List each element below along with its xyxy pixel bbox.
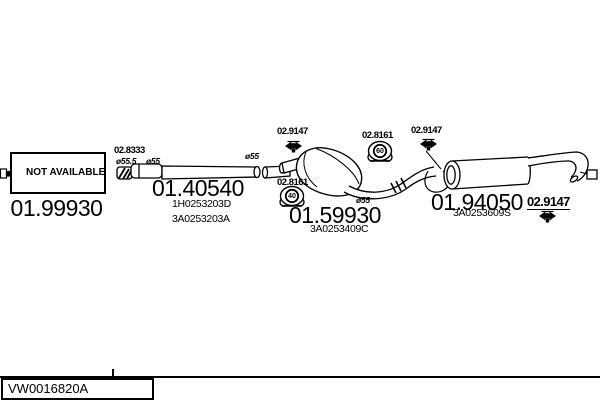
- hanger-size: 40: [285, 193, 299, 200]
- diameter-label: ø55: [146, 157, 160, 166]
- footer-tick: [112, 369, 114, 377]
- part-number-front-section: 01.99930: [8, 197, 105, 220]
- oem-ref: 3A0253203A: [172, 214, 230, 225]
- diameter-label: ø55: [245, 152, 259, 161]
- clamp-icon: [539, 212, 556, 223]
- part-number-clamp: 02.9147: [527, 195, 570, 210]
- oem-ref: 1H0253203D: [172, 199, 231, 210]
- not-available-box: NOT AVAILABLE: [10, 152, 106, 194]
- drawing-code-box: VW0016820A: [1, 378, 154, 400]
- rear-muffler-drawing: [426, 151, 597, 189]
- left-edge-connector-icon: [1, 169, 10, 178]
- oem-ref: 3A0253409C: [310, 224, 368, 235]
- part-number-coupler: 02.8333: [114, 146, 145, 156]
- not-available-label: NOT AVAILABLE: [26, 167, 90, 179]
- hanger-size: 60: [373, 148, 387, 155]
- diameter-label: ø55.5: [116, 157, 136, 166]
- exhaust-parts-diagram: { "diagram": { "front_section": { "statu…: [0, 0, 600, 400]
- part-number-hanger-front: 02.8161: [277, 178, 308, 188]
- part-number-clamp: 02.9147: [411, 126, 442, 136]
- mid-muffler-drawing: [280, 148, 450, 199]
- drawing-code: VW0016820A: [8, 381, 88, 396]
- clamp-icon: [420, 140, 437, 151]
- clamp-icon: [285, 142, 302, 153]
- part-number-front-pipe: 01.40540: [152, 177, 244, 200]
- part-number-clamp: 02.9147: [277, 127, 308, 137]
- part-number-hanger-rear: 02.8161: [362, 131, 393, 141]
- oem-ref: 3A0253609S: [453, 208, 511, 219]
